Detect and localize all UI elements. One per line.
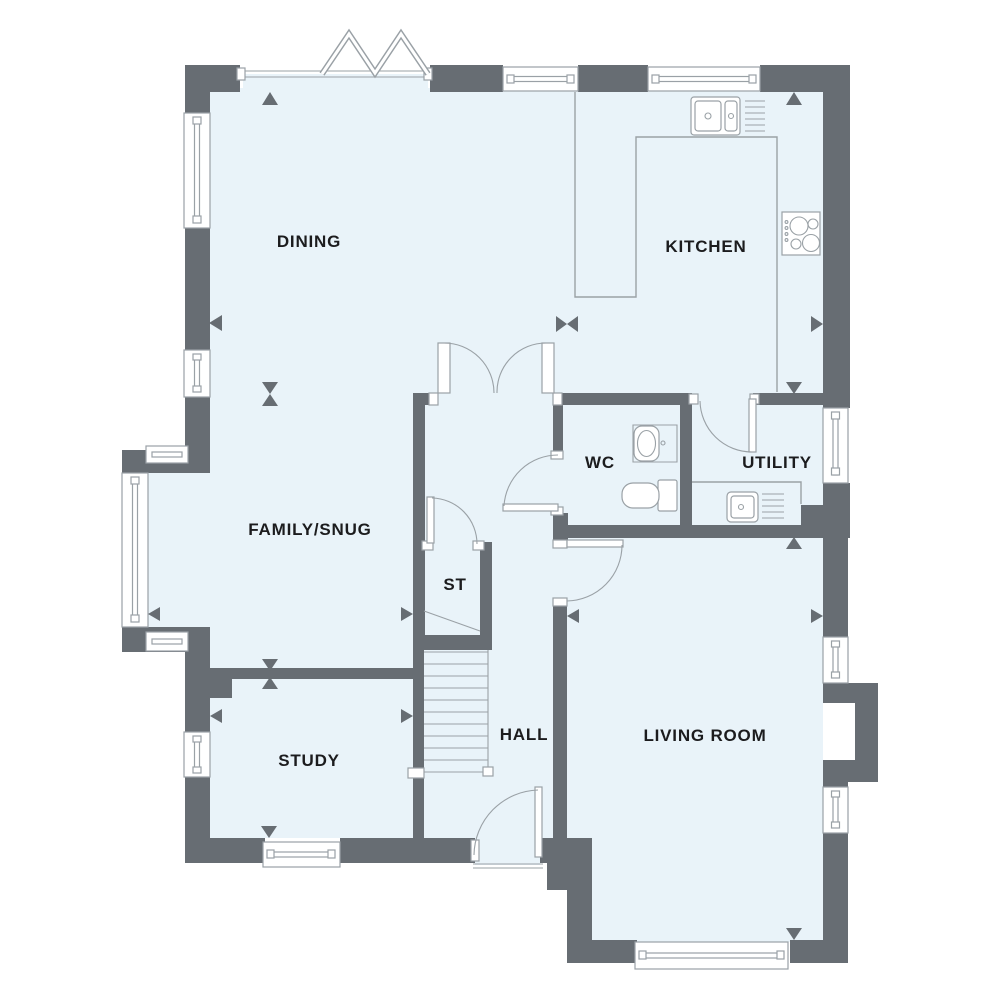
room-label-living-room: LIVING ROOM	[643, 726, 766, 745]
window-icon	[823, 787, 848, 833]
window-icon	[503, 67, 578, 91]
room-label-family-snug: FAMILY/SNUG	[248, 520, 371, 539]
window-icon	[184, 113, 210, 228]
window-icon	[648, 67, 760, 91]
window-icon	[635, 942, 788, 969]
floorplan-svg: DINING KITCHEN FAMILY/SNUG WC UTILITY ST…	[0, 0, 1000, 1000]
window-icon	[823, 408, 848, 483]
room-label-utility: UTILITY	[742, 453, 812, 472]
window-icon	[823, 637, 848, 683]
room-label-study: STUDY	[278, 751, 340, 770]
bifold-door-icon	[237, 34, 432, 80]
toilet-icon	[622, 480, 677, 511]
window-icon	[184, 350, 210, 397]
room-label-hall: HALL	[500, 725, 549, 744]
floor-areas	[148, 74, 823, 942]
room-label-wc: WC	[585, 453, 615, 472]
room-label-dining: DINING	[277, 232, 341, 251]
window-icon	[184, 732, 210, 777]
room-label-kitchen: KITCHEN	[665, 237, 746, 256]
hob-icon	[782, 212, 820, 255]
floorplan-canvas: DINING KITCHEN FAMILY/SNUG WC UTILITY ST…	[0, 0, 1000, 1000]
room-label-storage: ST	[443, 575, 466, 594]
window-icon	[263, 842, 340, 867]
